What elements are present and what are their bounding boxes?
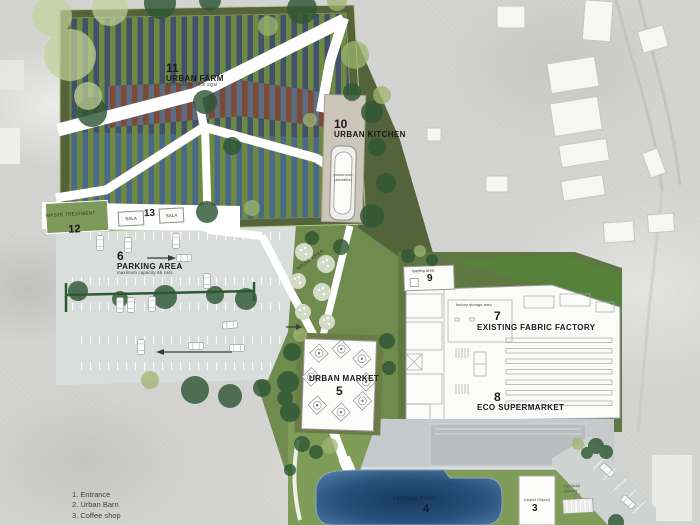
label-waste-treatment: WASTE TREATMENT 12 — [45, 202, 97, 238]
urban-kitchen-name: URBAN KITCHEN — [334, 131, 406, 139]
label-factory-name: EXISTING FABRIC FACTORY — [477, 324, 596, 332]
legend-item-entrance: 1. Entrance — [72, 490, 121, 500]
parking-capacity: maximum capacity 65 cars — [117, 271, 183, 276]
urban-kitchen-building — [321, 94, 365, 222]
label-coffee-number: 3 — [532, 504, 538, 515]
factory-floorplan — [406, 285, 620, 421]
label-factory-storage: factory storage area — [456, 302, 496, 307]
sala-box-right: SALA — [159, 207, 185, 223]
sala-box-left: SALA — [118, 210, 145, 226]
label-pond-name: EXISTING POND — [393, 497, 436, 502]
waste-treatment-number: 12 — [68, 223, 81, 236]
urban-kitchen-number: 10 — [334, 118, 406, 131]
parking-number: 6 — [117, 250, 183, 263]
legend: 1. Entrance 2. Urban Barn 3. Coffee shop — [72, 490, 121, 521]
label-market-number: 5 — [336, 385, 343, 398]
label-market-name: URBAN MARKET — [309, 375, 379, 383]
site-plan-canvas: 11 URBAN FARM TOTAL AREA 4000 SQM 10 URB… — [0, 0, 700, 525]
label-urban-kitchen: 10 URBAN KITCHEN — [334, 118, 406, 139]
urban-farm-area: TOTAL AREA 4000 SQM — [166, 83, 224, 88]
label-mushroom-plantation: mushroom plantation — [330, 172, 356, 182]
legend-item-urban-barn: 2. Urban Barn — [72, 500, 121, 510]
urban-farm-number: 11 — [166, 62, 224, 75]
waste-treatment-name: WASTE TREATMENT — [45, 211, 95, 219]
label-13: 13 — [144, 209, 156, 220]
label-loading-number: 9 — [427, 274, 433, 285]
label-handicap-parking: handicap parking — [564, 482, 588, 493]
legend-item-coffee-shop: 3. Coffee shop — [72, 511, 121, 521]
label-parking-area: 6 PARKING AREA maximum capacity 65 cars — [117, 250, 183, 275]
label-supermarket-name: ECO SUPERMARKET — [477, 404, 564, 412]
label-pond-number: 4 — [423, 504, 429, 516]
site-plan-drawing — [0, 0, 700, 525]
label-urban-farm: 11 URBAN FARM TOTAL AREA 4000 SQM — [166, 62, 224, 87]
label-supermarket-number: 8 — [494, 391, 501, 404]
label-factory-number: 7 — [494, 310, 501, 323]
label-coffee-store: [object Object] — [521, 497, 553, 502]
